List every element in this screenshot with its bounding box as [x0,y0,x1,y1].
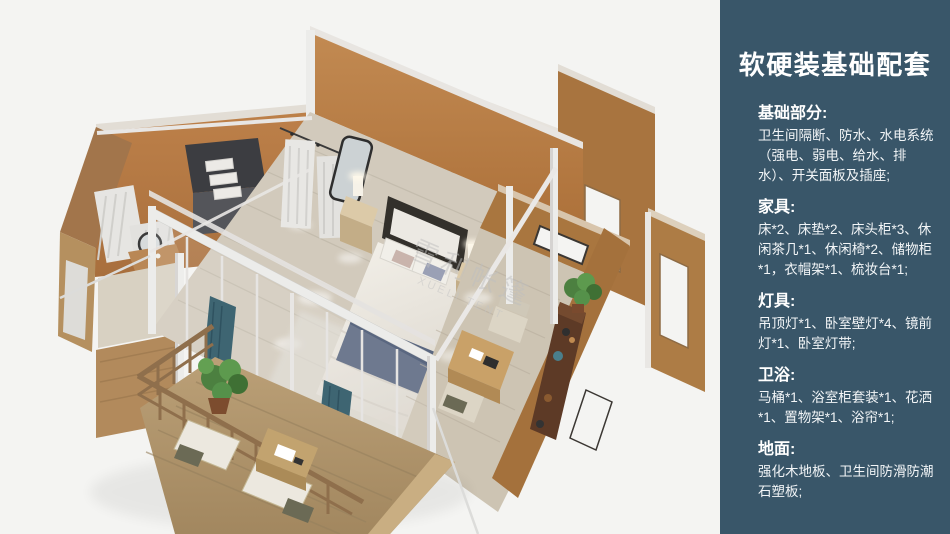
frame-post [148,206,156,334]
section-body: 床*2、床垫*2、床头柜*3、休闲茶几*1、休闲椅*2、储物柜*1，衣帽架*1、… [758,220,936,280]
section-body: 吊顶灯*1、卧室壁灯*4、镜前灯*1、卧室灯带; [758,314,936,354]
section-body: 卫生间隔断、防水、水电系统（强电、弱电、给水、排水）、开关面板及插座; [758,126,936,186]
section-furniture: 家具: 床*2、床垫*2、床头柜*3、休闲茶几*1、休闲椅*2、储物柜*1，衣帽… [758,198,936,280]
section-heading: 基础部分: [758,104,936,124]
section-flooring: 地面: 强化木地板、卫生间防滑防潮石塑板; [758,440,936,502]
section-body: 马桶*1、浴室柜套装*1、花洒*1、置物架*1、浴帘*1; [758,388,936,428]
floorplan-illustration: 雪利帐篷 XUELI TENT [0,0,720,534]
floorplan-render: 雪利帐篷 XUELI TENT [0,0,720,534]
section-body: 强化木地板、卫生间防滑防潮石塑板; [758,462,936,502]
package-sidebar: 软硬装基础配套 基础部分: 卫生间隔断、防水、水电系统（强电、弱电、给水、排水）… [720,0,950,534]
section-lighting: 灯具: 吊顶灯*1、卧室壁灯*4、镜前灯*1、卧室灯带; [758,292,936,354]
slide: 雪利帐篷 XUELI TENT 软硬装基础配套 基础部分: 卫生间隔断、防水、水… [0,0,950,534]
end-door-frame [660,254,688,348]
section-heading: 卫浴: [758,366,936,386]
section-bathroom: 卫浴: 马桶*1、浴室柜套装*1、花洒*1、置物架*1、浴帘*1; [758,366,936,428]
frame-post [306,30,315,122]
section-basics: 基础部分: 卫生间隔断、防水、水电系统（强电、弱电、给水、排水）、开关面板及插座… [758,104,936,186]
section-heading: 地面: [758,440,936,460]
section-heading: 灯具: [758,292,936,312]
section-heading: 家具: [758,198,936,218]
sidebar-title: 软硬装基础配套 [720,50,950,80]
sidebar-content: 基础部分: 卫生间隔断、防水、水电系统（强电、弱电、给水、排水）、开关面板及插座… [720,80,950,502]
